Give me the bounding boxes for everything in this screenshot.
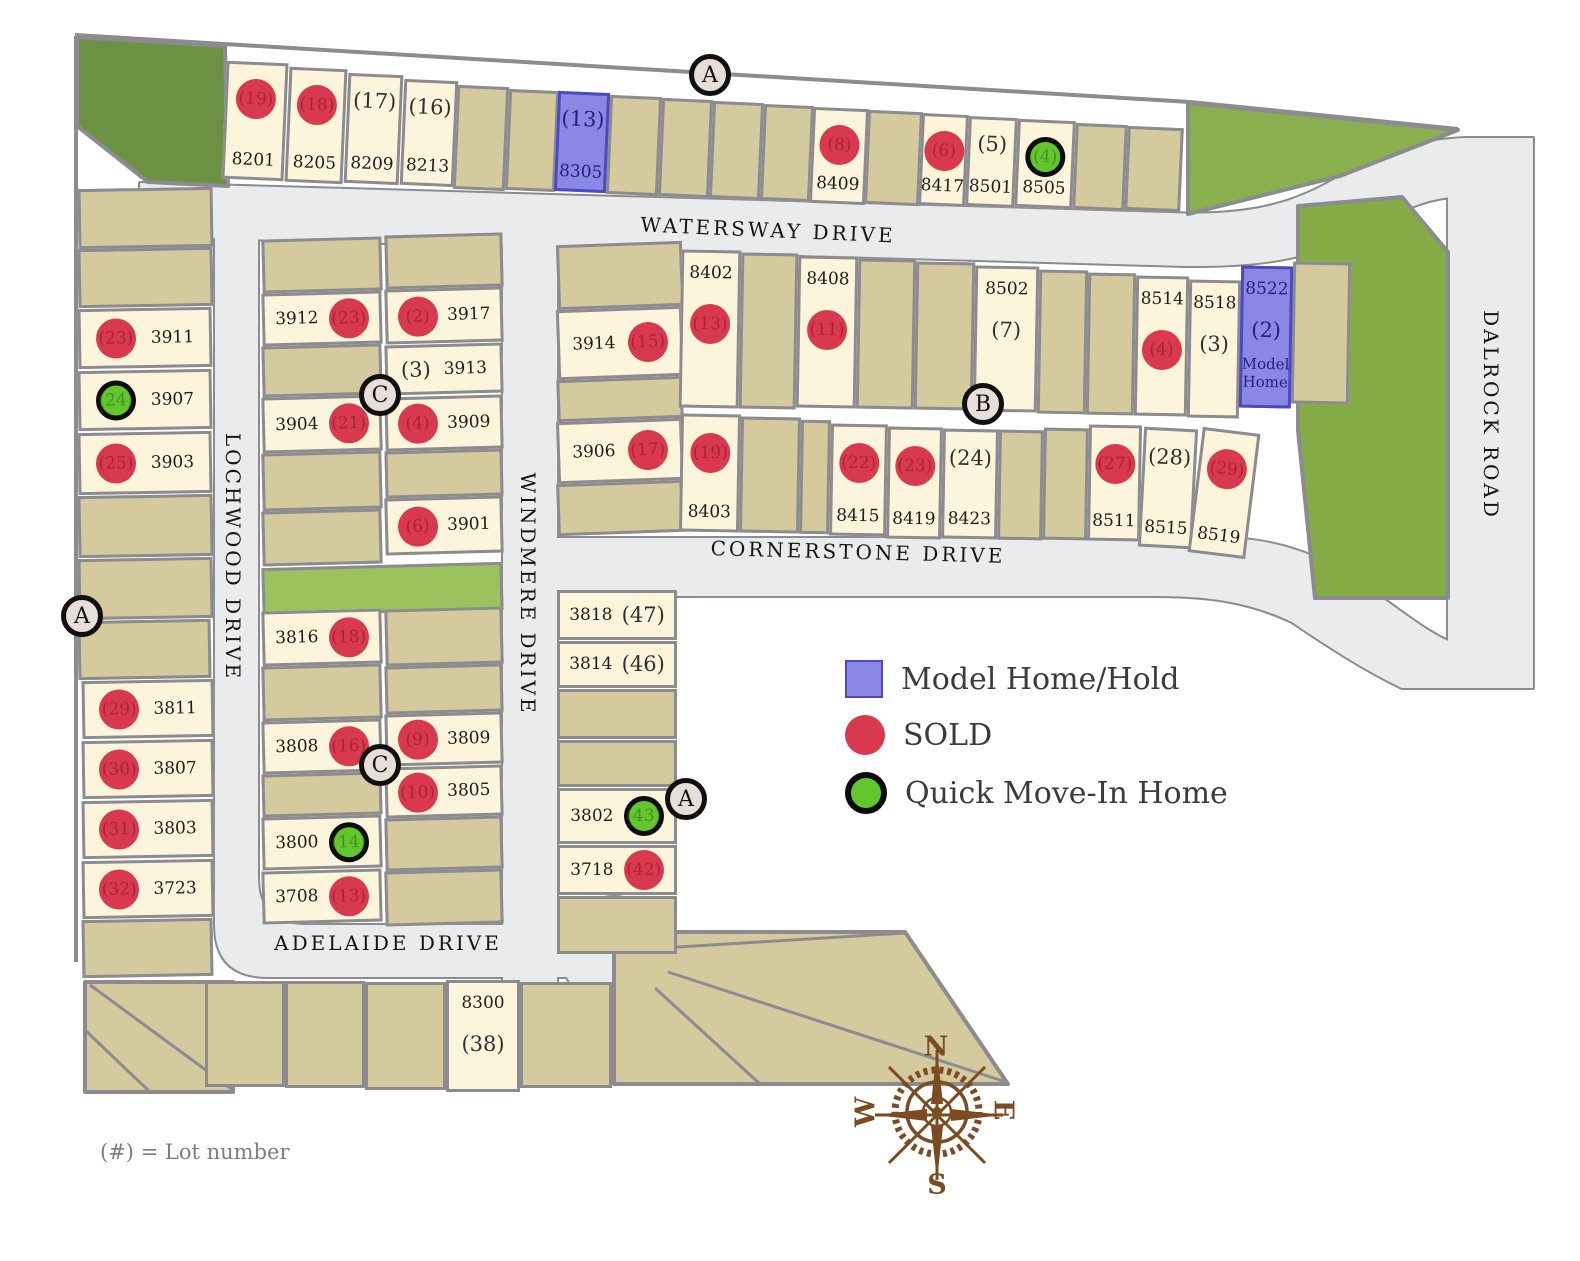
lot-8402[interactable]: 8402(13) [679, 249, 742, 408]
lot-address: 3906 [572, 443, 616, 461]
sold-marker: (23) [894, 446, 935, 487]
sold-marker: (10) [397, 772, 438, 813]
sold-marker: (13) [690, 304, 731, 345]
lot-address: 8511 [1092, 513, 1136, 531]
lot-8409[interactable]: (8)8409 [809, 107, 869, 205]
lot-3811[interactable]: (29)3811 [82, 679, 215, 739]
lot-3814[interactable]: 3814(46) [557, 641, 677, 688]
lot-8417[interactable]: (6)8417 [918, 113, 969, 207]
parcel [384, 232, 503, 289]
lot-8518[interactable]: 8518(3) [1187, 280, 1241, 419]
legend-label: SOLD [903, 718, 992, 753]
lot-number: (17) [353, 90, 397, 113]
sold-marker: (25) [96, 443, 137, 484]
lot-3816[interactable]: 3816(18) [261, 608, 382, 666]
lot-3913[interactable]: (3)3913 [384, 342, 503, 395]
sold-marker: (2) [397, 296, 438, 337]
parcel [520, 982, 612, 1088]
lot-address: 3901 [447, 516, 491, 534]
parcel [1072, 123, 1128, 211]
lot-address: 8201 [231, 151, 275, 170]
lot-8522[interactable]: 8522(2)Model Home [1239, 266, 1293, 409]
lot-address: 3802 [570, 808, 613, 825]
sold-marker: (21) [328, 403, 369, 444]
sold-marker: (4) [1141, 330, 1182, 371]
sold-marker: (6) [923, 130, 965, 172]
legend-label: Model Home/Hold [901, 662, 1179, 697]
lot-number-footnote: (#) = Lot number [100, 1140, 290, 1164]
lot-number: (24) [949, 448, 992, 470]
parcel [77, 247, 213, 308]
parcel [760, 104, 814, 202]
lot-address: 3816 [275, 629, 319, 647]
section-marker-B: B [962, 383, 1004, 425]
sold-marker: (8) [819, 124, 861, 166]
quick-move-in-marker: (14) [328, 821, 369, 862]
section-marker-A: A [665, 778, 707, 820]
section-marker-A: A [61, 595, 103, 637]
sold-marker: (19) [235, 78, 277, 120]
lot-address: 8209 [350, 155, 394, 174]
greenspace-top-left [77, 37, 228, 186]
sold-marker: (9) [397, 719, 438, 760]
parcel [557, 689, 677, 739]
lot-3803[interactable]: (31)3803 [82, 799, 215, 859]
lot-3818[interactable]: 3818(47) [557, 590, 677, 640]
lot-3718[interactable]: 3718(42) [557, 845, 677, 895]
lot-8408[interactable]: 8408(11) [796, 255, 859, 408]
parcel [997, 430, 1044, 541]
sold-marker: (15) [627, 321, 668, 362]
lot-3723[interactable]: (32)3723 [82, 859, 215, 919]
parcel [1124, 126, 1184, 212]
section-marker-C: C [359, 744, 401, 786]
street-label-adelaide: ADELAIDE DRIVE [274, 931, 502, 955]
compass-north-label: N [924, 1032, 949, 1063]
lot-8501[interactable]: (5)8501 [965, 116, 1018, 208]
parcel [556, 241, 684, 310]
lot-address: 3708 [275, 888, 319, 906]
lot-address: 3805 [447, 782, 491, 800]
sold-marker: (30) [99, 749, 140, 790]
lot-address: 3807 [153, 760, 197, 778]
parcel [739, 253, 799, 410]
parcel [261, 236, 382, 293]
quick-move-in-marker: (4) [1024, 136, 1066, 178]
parcel [285, 981, 365, 1088]
compass-south-label: S [927, 1170, 947, 1201]
parcel [856, 259, 917, 410]
lot-address: 8415 [836, 508, 880, 526]
lot-address: 8402 [689, 265, 733, 283]
lot-address: 3903 [151, 454, 195, 472]
parcel [384, 815, 503, 871]
parcel [77, 187, 213, 249]
lot-address: 8300 [461, 995, 504, 1012]
lot-address: 3808 [275, 738, 319, 756]
sold-marker: (31) [99, 809, 140, 850]
lot-number: (28) [1148, 446, 1192, 469]
sold-marker: (29) [1205, 447, 1250, 492]
lot-address: 8505 [1022, 179, 1066, 198]
lot-address: 3917 [447, 306, 491, 324]
parcel [556, 376, 683, 422]
lot-address: 3911 [151, 329, 195, 347]
parcel [914, 261, 976, 410]
parcel [261, 663, 382, 721]
lot-3907[interactable]: (24)3907 [77, 369, 212, 431]
parcel [799, 420, 831, 535]
street-label-windmere: WINDMERE DRIVE [516, 472, 540, 715]
lot-address: 3723 [153, 880, 197, 898]
sold-marker: (4) [397, 403, 438, 444]
compass-east-label: E [988, 1100, 1019, 1121]
lot-number: (5) [977, 133, 1008, 155]
sold-marker: (6) [397, 506, 438, 547]
legend-row-quick: Quick Move-In Home [845, 772, 1228, 814]
lot-address: 8419 [892, 511, 936, 529]
parcel [77, 494, 213, 558]
parcel [658, 98, 713, 198]
lot-8419[interactable]: (23)8419 [886, 427, 943, 540]
parcel [556, 480, 684, 536]
lot-address: 3904 [275, 416, 319, 434]
lot-address: 3800 [275, 834, 319, 852]
lot-8201[interactable]: (19)8201 [221, 61, 288, 182]
legend-row-sold: SOLD [845, 715, 1228, 755]
quick-move-in-marker: (24) [96, 380, 137, 421]
lot-address: 3809 [447, 729, 491, 747]
lot-8213[interactable]: (16)8213 [400, 79, 459, 187]
lot-address: 8417 [920, 177, 964, 196]
compass-west-label: W [851, 1097, 882, 1127]
lot-address: 3814 [569, 656, 612, 673]
lot-number: (13) [561, 108, 605, 131]
lot-address: 8501 [968, 178, 1012, 197]
lot-number: (7) [991, 320, 1021, 342]
lot-8423[interactable]: (24)8423 [941, 429, 999, 540]
lot-3807[interactable]: (30)3807 [82, 739, 215, 799]
parcel [1042, 428, 1089, 541]
lot-8415[interactable]: (22)8415 [829, 424, 888, 537]
street-label-dalrock: DALROCK ROAD [1479, 310, 1503, 520]
lot-address: 3912 [275, 310, 319, 328]
lot-address: 3909 [447, 413, 491, 431]
section-marker-A: A [689, 54, 731, 96]
lot-address: 3811 [153, 700, 197, 718]
parcel [365, 982, 446, 1090]
lot-address: 8305 [559, 163, 603, 182]
sold-marker: (19) [690, 433, 731, 474]
lot-number: (46) [622, 654, 665, 675]
lot-3914[interactable]: 3914(15) [556, 306, 684, 380]
parcel [606, 95, 662, 196]
quick-move-in-marker: (43) [624, 796, 664, 836]
lot-3912[interactable]: 3912(23) [261, 290, 382, 346]
legend-label: Quick Move-In Home [905, 776, 1228, 811]
sold-marker: (11) [807, 310, 848, 351]
lot-address: 3914 [572, 335, 616, 353]
lot-3906[interactable]: 3906(17) [556, 418, 684, 484]
sold-marker: (13) [328, 875, 369, 916]
parcel [384, 448, 503, 498]
sold-marker: (29) [99, 689, 140, 730]
lot-8505[interactable]: (4)8505 [1014, 119, 1076, 209]
lot-number: (38) [461, 1034, 504, 1055]
parcel [709, 101, 764, 200]
lot-address: 3803 [153, 820, 197, 838]
parcel [261, 450, 382, 511]
parcel [1037, 270, 1089, 415]
parcel [82, 918, 214, 978]
lot-3903[interactable]: (25)3903 [77, 431, 212, 495]
model-home-swatch [845, 660, 883, 698]
parcel [261, 508, 382, 566]
lot-3911[interactable]: (23)3911 [77, 307, 212, 369]
lot-number: (3) [401, 359, 431, 381]
sold-marker: (32) [99, 869, 140, 910]
lot-address: 8514 [1141, 291, 1185, 309]
lot-3800[interactable]: 3800(14) [261, 814, 382, 870]
lot-address: 8518 [1193, 295, 1237, 313]
lot-address: 8519 [1196, 525, 1241, 547]
parcel [557, 896, 677, 954]
lot-address: 8502 [985, 281, 1029, 299]
lot-address: 3818 [569, 607, 612, 624]
lot-3802[interactable]: 3802(43) [557, 788, 677, 844]
lot-8511[interactable]: (27)8511 [1087, 425, 1142, 542]
lot-address: 3913 [443, 359, 487, 377]
parcel [864, 110, 923, 206]
sold-marker: (42) [624, 850, 664, 890]
lot-address: 8522 [1245, 281, 1289, 299]
community-site-map: WATERSWAY DRIVE CORNERSTONE DRIVE ADELAI… [0, 0, 1580, 1261]
parcel [739, 416, 801, 533]
sold-marker: (22) [838, 443, 879, 484]
sold-marker: (18) [328, 616, 369, 657]
model-home-note: Model Home [1241, 355, 1289, 392]
lot-address: 8213 [406, 157, 450, 176]
parcel [384, 868, 503, 926]
street-label-lochwood: LOCHWOOD DRIVE [221, 433, 245, 681]
lot-8300[interactable]: 8300(38) [446, 980, 520, 1092]
parcel [453, 85, 509, 191]
lot-address: 8423 [948, 511, 992, 529]
lot-address: 8205 [292, 154, 336, 173]
sold-marker: (23) [96, 318, 137, 359]
lot-3805[interactable]: (10)3805 [384, 764, 503, 818]
quick-move-in-swatch [845, 772, 887, 814]
lot-address: 8515 [1144, 519, 1188, 538]
lot-number: (16) [408, 96, 452, 119]
lot-address: 8409 [816, 175, 860, 194]
lot-address: 3907 [151, 391, 195, 409]
lot-8514[interactable]: 8514(4) [1134, 276, 1189, 417]
lot-3917[interactable]: (2)3917 [384, 286, 503, 344]
lot-number: (2) [1251, 320, 1281, 342]
lot-3901[interactable]: (6)3901 [384, 495, 503, 555]
sold-marker: (27) [1094, 444, 1135, 485]
legend-row-model: Model Home/Hold [845, 660, 1228, 698]
sold-marker: (18) [296, 84, 338, 126]
parcel [384, 663, 503, 714]
lot-address: 8408 [806, 271, 850, 289]
section-marker-C: C [359, 374, 401, 416]
lot-3809[interactable]: (9)3809 [384, 711, 503, 766]
parcel [557, 740, 677, 787]
lot-8209[interactable]: (17)8209 [344, 73, 404, 185]
lot-number: (3) [1199, 334, 1229, 356]
lot-8403[interactable]: (19)8403 [679, 413, 741, 532]
lot-3708[interactable]: 3708(13) [261, 868, 382, 924]
parcel [1086, 273, 1136, 416]
sold-swatch [845, 715, 885, 755]
parcel [1291, 262, 1351, 405]
lot-3909[interactable]: (4)3909 [384, 394, 503, 451]
sold-marker: (17) [627, 429, 668, 470]
parcel [384, 606, 503, 666]
parcel [505, 89, 559, 192]
sold-marker: (23) [328, 297, 369, 338]
lot-8305[interactable]: (13)8305 [554, 91, 610, 193]
legend: Model Home/Hold SOLD Quick Move-In Home [845, 660, 1228, 831]
lot-8205[interactable]: (18)8205 [285, 67, 348, 184]
parcel [205, 981, 285, 1087]
lot-number: (47) [622, 605, 665, 626]
lot-address: 3718 [570, 862, 613, 879]
lot-address: 8403 [688, 504, 732, 522]
